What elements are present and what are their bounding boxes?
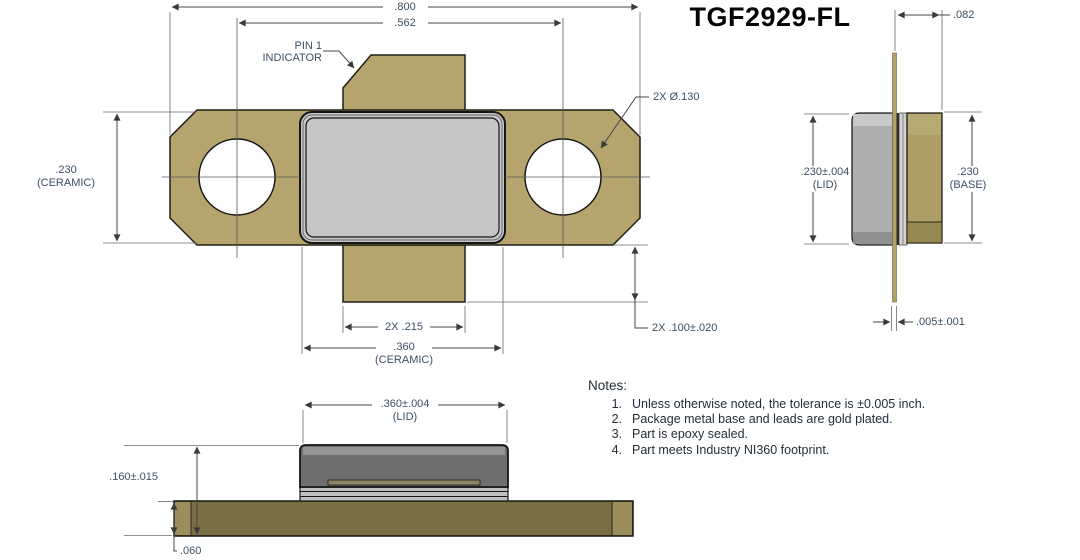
bottom-base-left-cap: [175, 502, 191, 535]
dim-hole-diameter: 2X Ø.130: [653, 91, 699, 103]
note-item: 3. Part is epoxy sealed.: [588, 427, 925, 442]
bottom-base: [174, 501, 633, 536]
dim-overall-height: .160±.015: [96, 471, 158, 483]
side-lid-bottom-facet: [853, 232, 893, 244]
lead-tab-top: [343, 55, 465, 112]
dim-lead-thickness: .005±.001: [916, 316, 965, 328]
pin1-leader: [323, 51, 354, 68]
dim-lid-width: .360±.004 (LID): [365, 398, 445, 424]
front-view: [162, 18, 650, 302]
dim-hole-spacing: .562: [380, 17, 430, 29]
bottom-lid-seal-stripe: [328, 480, 480, 485]
note-item: 1. Unless otherwise noted, the tolerance…: [588, 397, 925, 412]
bottom-view: [174, 445, 633, 536]
dim-ceramic-width: .360 (CERAMIC): [368, 341, 440, 367]
dim-overall-width: .800: [380, 1, 430, 13]
dim-base-height: .230 (BASE): [938, 166, 998, 192]
dim-lead-extension: 2X .100±.020: [652, 322, 717, 334]
bottom-lid-top-facet: [303, 447, 505, 455]
ceramic-lid: [300, 112, 505, 243]
side-lid-top-facet: [853, 114, 892, 126]
dim-base-thickness: .060: [180, 545, 201, 557]
side-view: [852, 53, 942, 302]
bottom-base-right-cap: [612, 502, 632, 535]
dimension-lines: [117, 7, 972, 551]
dim-lead-setback: .082: [953, 9, 974, 21]
part-number-title: TGF2929-FL: [655, 2, 885, 33]
lead-tab-bottom: [343, 245, 465, 302]
drawing-sheet: TGF2929-FL .800 .562 PIN 1 INDICATOR 2X …: [0, 0, 1080, 560]
bottom-ceramic-band: [300, 487, 508, 501]
dim-lid-height: .230±.004 (LID): [789, 166, 861, 192]
technical-drawing: [0, 0, 1080, 560]
notes-heading: Notes:: [588, 378, 925, 393]
side-base-top-facet: [908, 114, 941, 135]
notes-block: Notes: 1. Unless otherwise noted, the to…: [588, 378, 925, 458]
note-item: 2. Package metal base and leads are gold…: [588, 412, 925, 427]
pin1-indicator-label: PIN 1 INDICATOR: [248, 40, 322, 64]
side-lead: [893, 53, 897, 302]
side-base-bottom-facet: [907, 222, 942, 243]
note-item: 4. Part meets Industry NI360 footprint.: [588, 443, 925, 458]
dim-ceramic-height: .230 (CERAMIC): [18, 164, 114, 190]
dim-lead-width: 2X .215: [375, 321, 433, 333]
